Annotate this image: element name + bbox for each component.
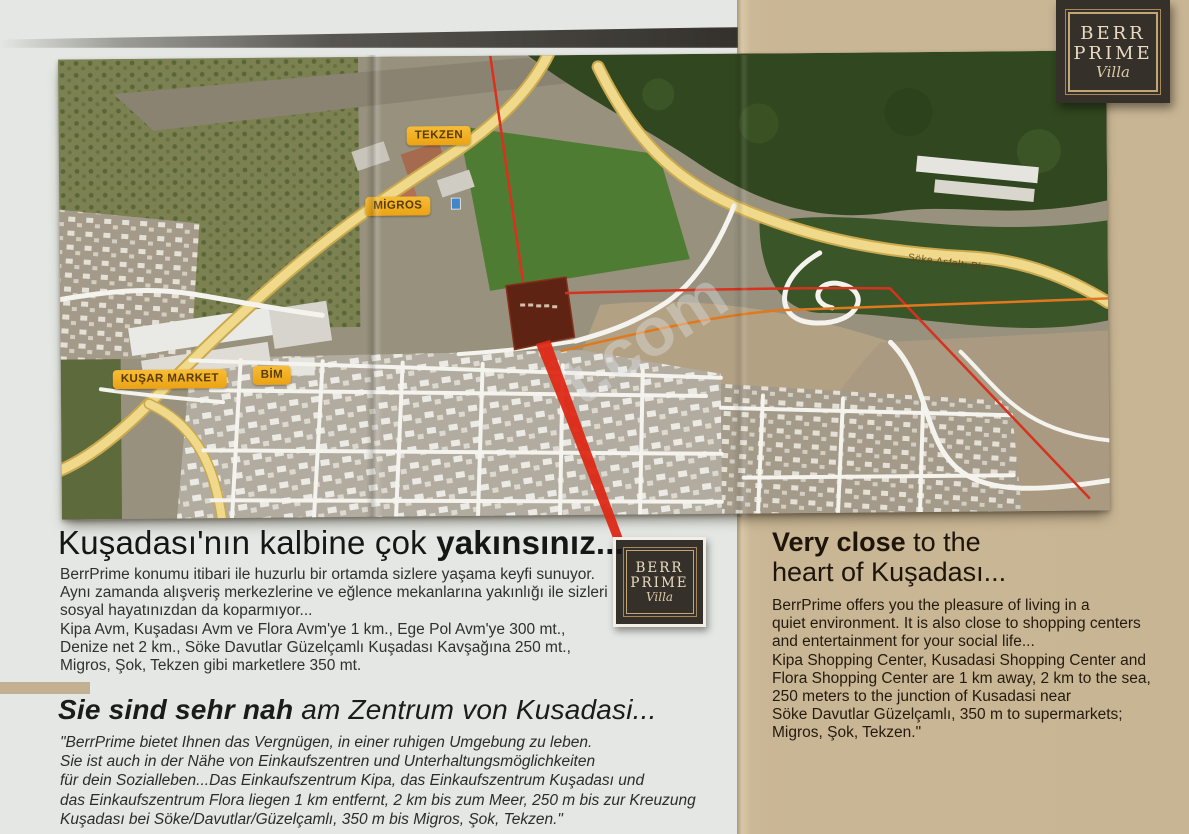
page-fold-shadow <box>0 27 738 48</box>
brand-script: Villa <box>1096 64 1130 80</box>
german-heading: Sie sind sehr nah am Zentrum von Kusadas… <box>58 694 718 726</box>
german-body: "BerrPrime bietet Ihnen das Vergnügen, i… <box>60 733 730 829</box>
english-heading: Very close to the heart of Kuşadası... <box>772 527 1172 587</box>
map-label-tekzen: TEKZEN <box>407 126 472 146</box>
brand-logo-top: BERR PRIME Villa <box>1056 0 1170 103</box>
satellite-map: Söke Asfaltı Blv. t.com TEKZEN MİGROS KU… <box>58 50 1110 519</box>
map-pin-marker <box>451 198 460 209</box>
map-label-migros: MİGROS <box>365 196 430 216</box>
property-plot <box>506 277 575 350</box>
satellite-map-art: Söke Asfaltı Blv. t.com <box>58 50 1110 519</box>
brand-word-2: PRIME <box>1073 44 1152 64</box>
map-label-bim: BİM <box>253 366 291 385</box>
map-label-kusar-market: KUŞAR MARKET <box>113 369 227 389</box>
brand-word-1: BERR <box>1080 24 1145 44</box>
turkish-body: BerrPrime konumu itibari ile huzurlu bir… <box>60 566 700 675</box>
section-divider-bar <box>0 682 90 694</box>
english-body: BerrPrime offers you the pleasure of liv… <box>772 597 1182 743</box>
turkish-heading: Kuşadası'nın kalbine çok yakınsınız... <box>58 524 698 562</box>
brand-logo-frame: BERR PRIME Villa <box>1068 12 1158 92</box>
